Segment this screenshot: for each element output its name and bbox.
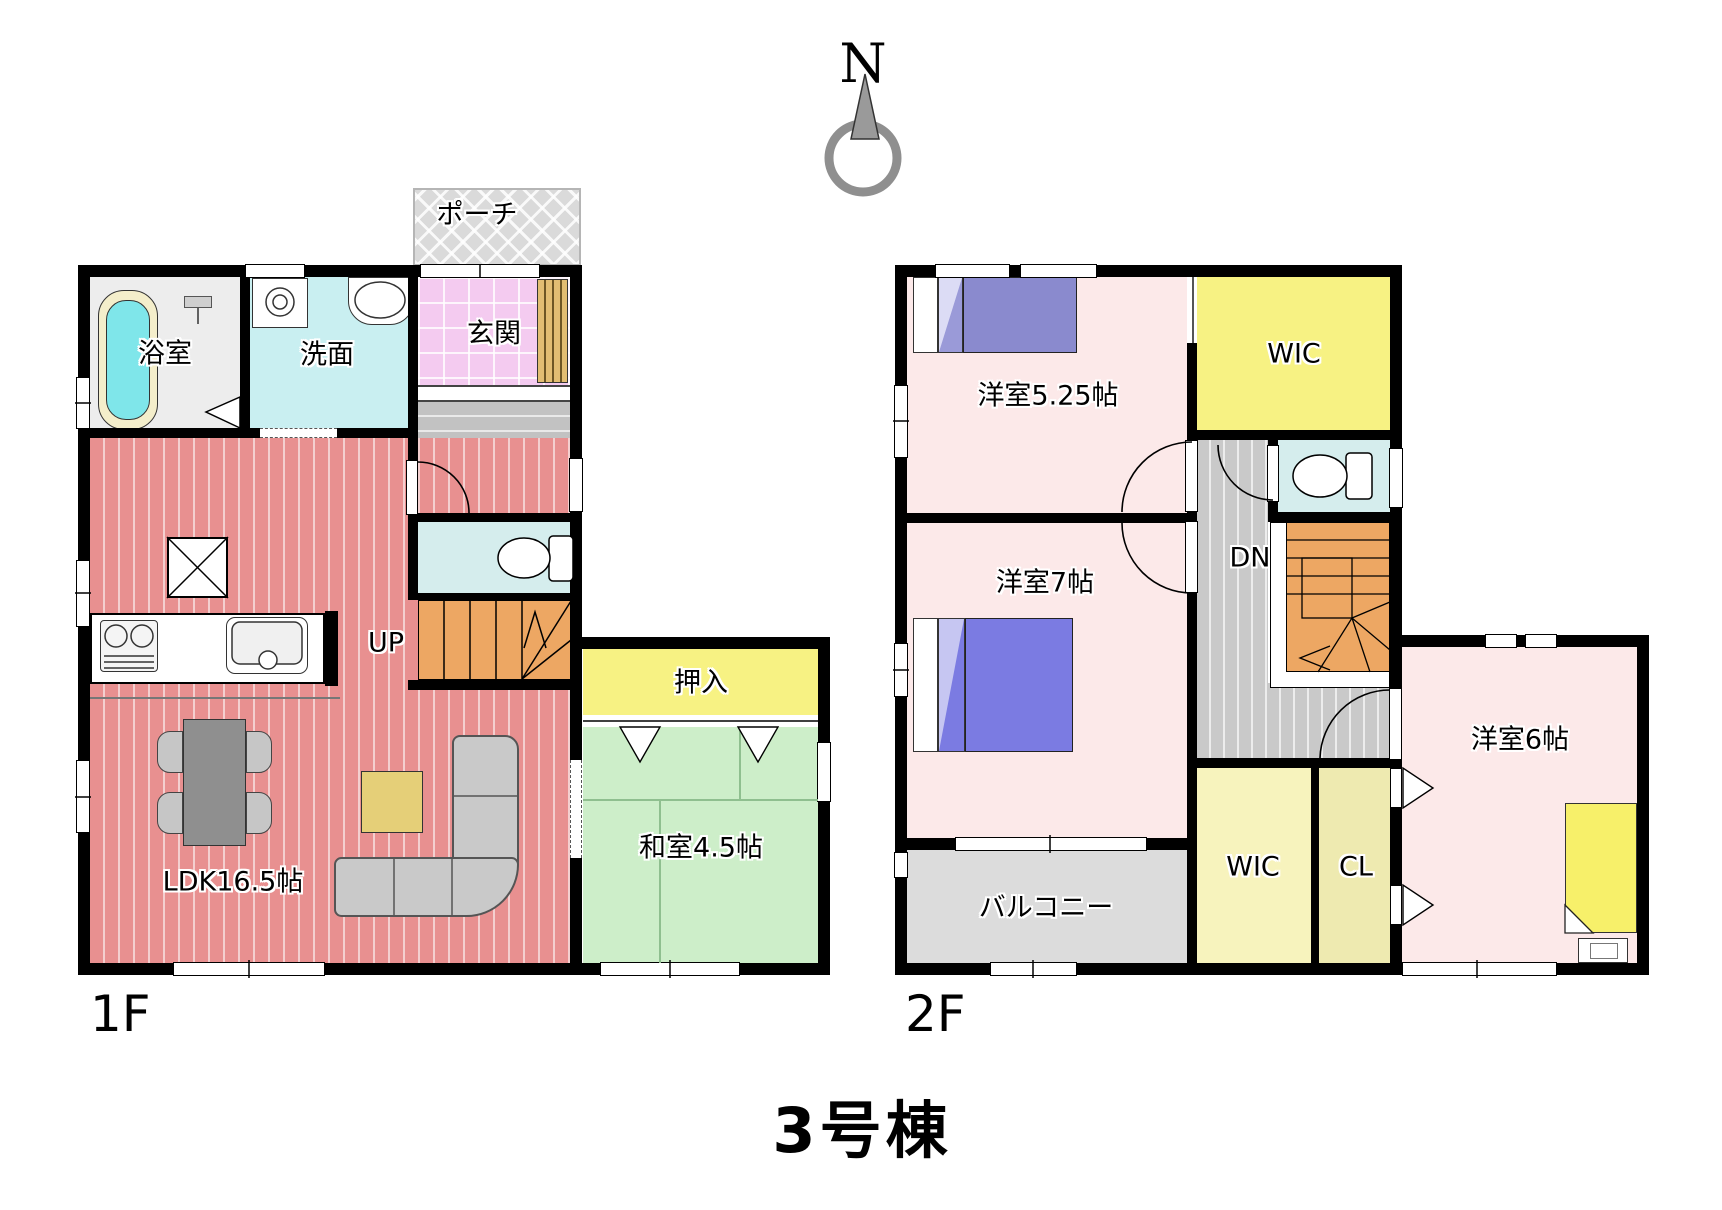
room-label-entrance: 玄関 — [467, 312, 521, 351]
stairs-2f-treads — [1286, 540, 1390, 672]
sofa-lines — [394, 796, 517, 915]
room-label-bedroom-525: 洋室5.25帖 — [977, 374, 1118, 413]
room-label-oshiire: 押入 — [674, 661, 728, 700]
toilet-icon-2f — [1293, 453, 1372, 499]
room-label-ldk: LDK16.5帖 — [163, 860, 304, 899]
room-label-wic-bottom: WIC — [1226, 852, 1280, 883]
door-arcs — [418, 442, 1390, 758]
bed-details — [1565, 905, 1593, 933]
room-label-bedroom-6: 洋室6帖 — [1471, 718, 1569, 757]
room-label-washitsu: 和室4.5帖 — [639, 826, 763, 865]
room-label-balcony: バルコニー — [979, 886, 1113, 925]
room-label-porch: ポーチ — [437, 193, 518, 232]
stairs-down-label: DN — [1230, 543, 1271, 574]
room-label-cl: CL — [1339, 852, 1373, 883]
room-label-wic-top: WIC — [1267, 339, 1321, 370]
stairs-up-label: UP — [368, 628, 404, 659]
floorplan-line-art — [0, 0, 1722, 1210]
kitchen-details — [104, 537, 302, 669]
room-label-bedroom-7: 洋室7帖 — [996, 561, 1094, 600]
floor-label-1f: 1F — [90, 985, 151, 1043]
floor-label-2f: 2F — [905, 985, 966, 1043]
floor-plan-canvas: N 浴室 洗面 玄関 ポーチ UP 押入 和室4.5帖 LDK16.5帖 洋室5… — [0, 0, 1722, 1210]
toilet-icon-1f — [498, 536, 573, 581]
oshiire-door-triangles — [583, 721, 820, 762]
room-label-bath: 浴室 — [138, 332, 192, 371]
closet-door-triangles — [1403, 768, 1433, 925]
stairs-1f-treads — [444, 601, 571, 679]
room-label-wash: 洗面 — [300, 333, 354, 372]
compass-north-label: N — [839, 32, 886, 95]
building-title: 3号棟 — [772, 1080, 951, 1170]
